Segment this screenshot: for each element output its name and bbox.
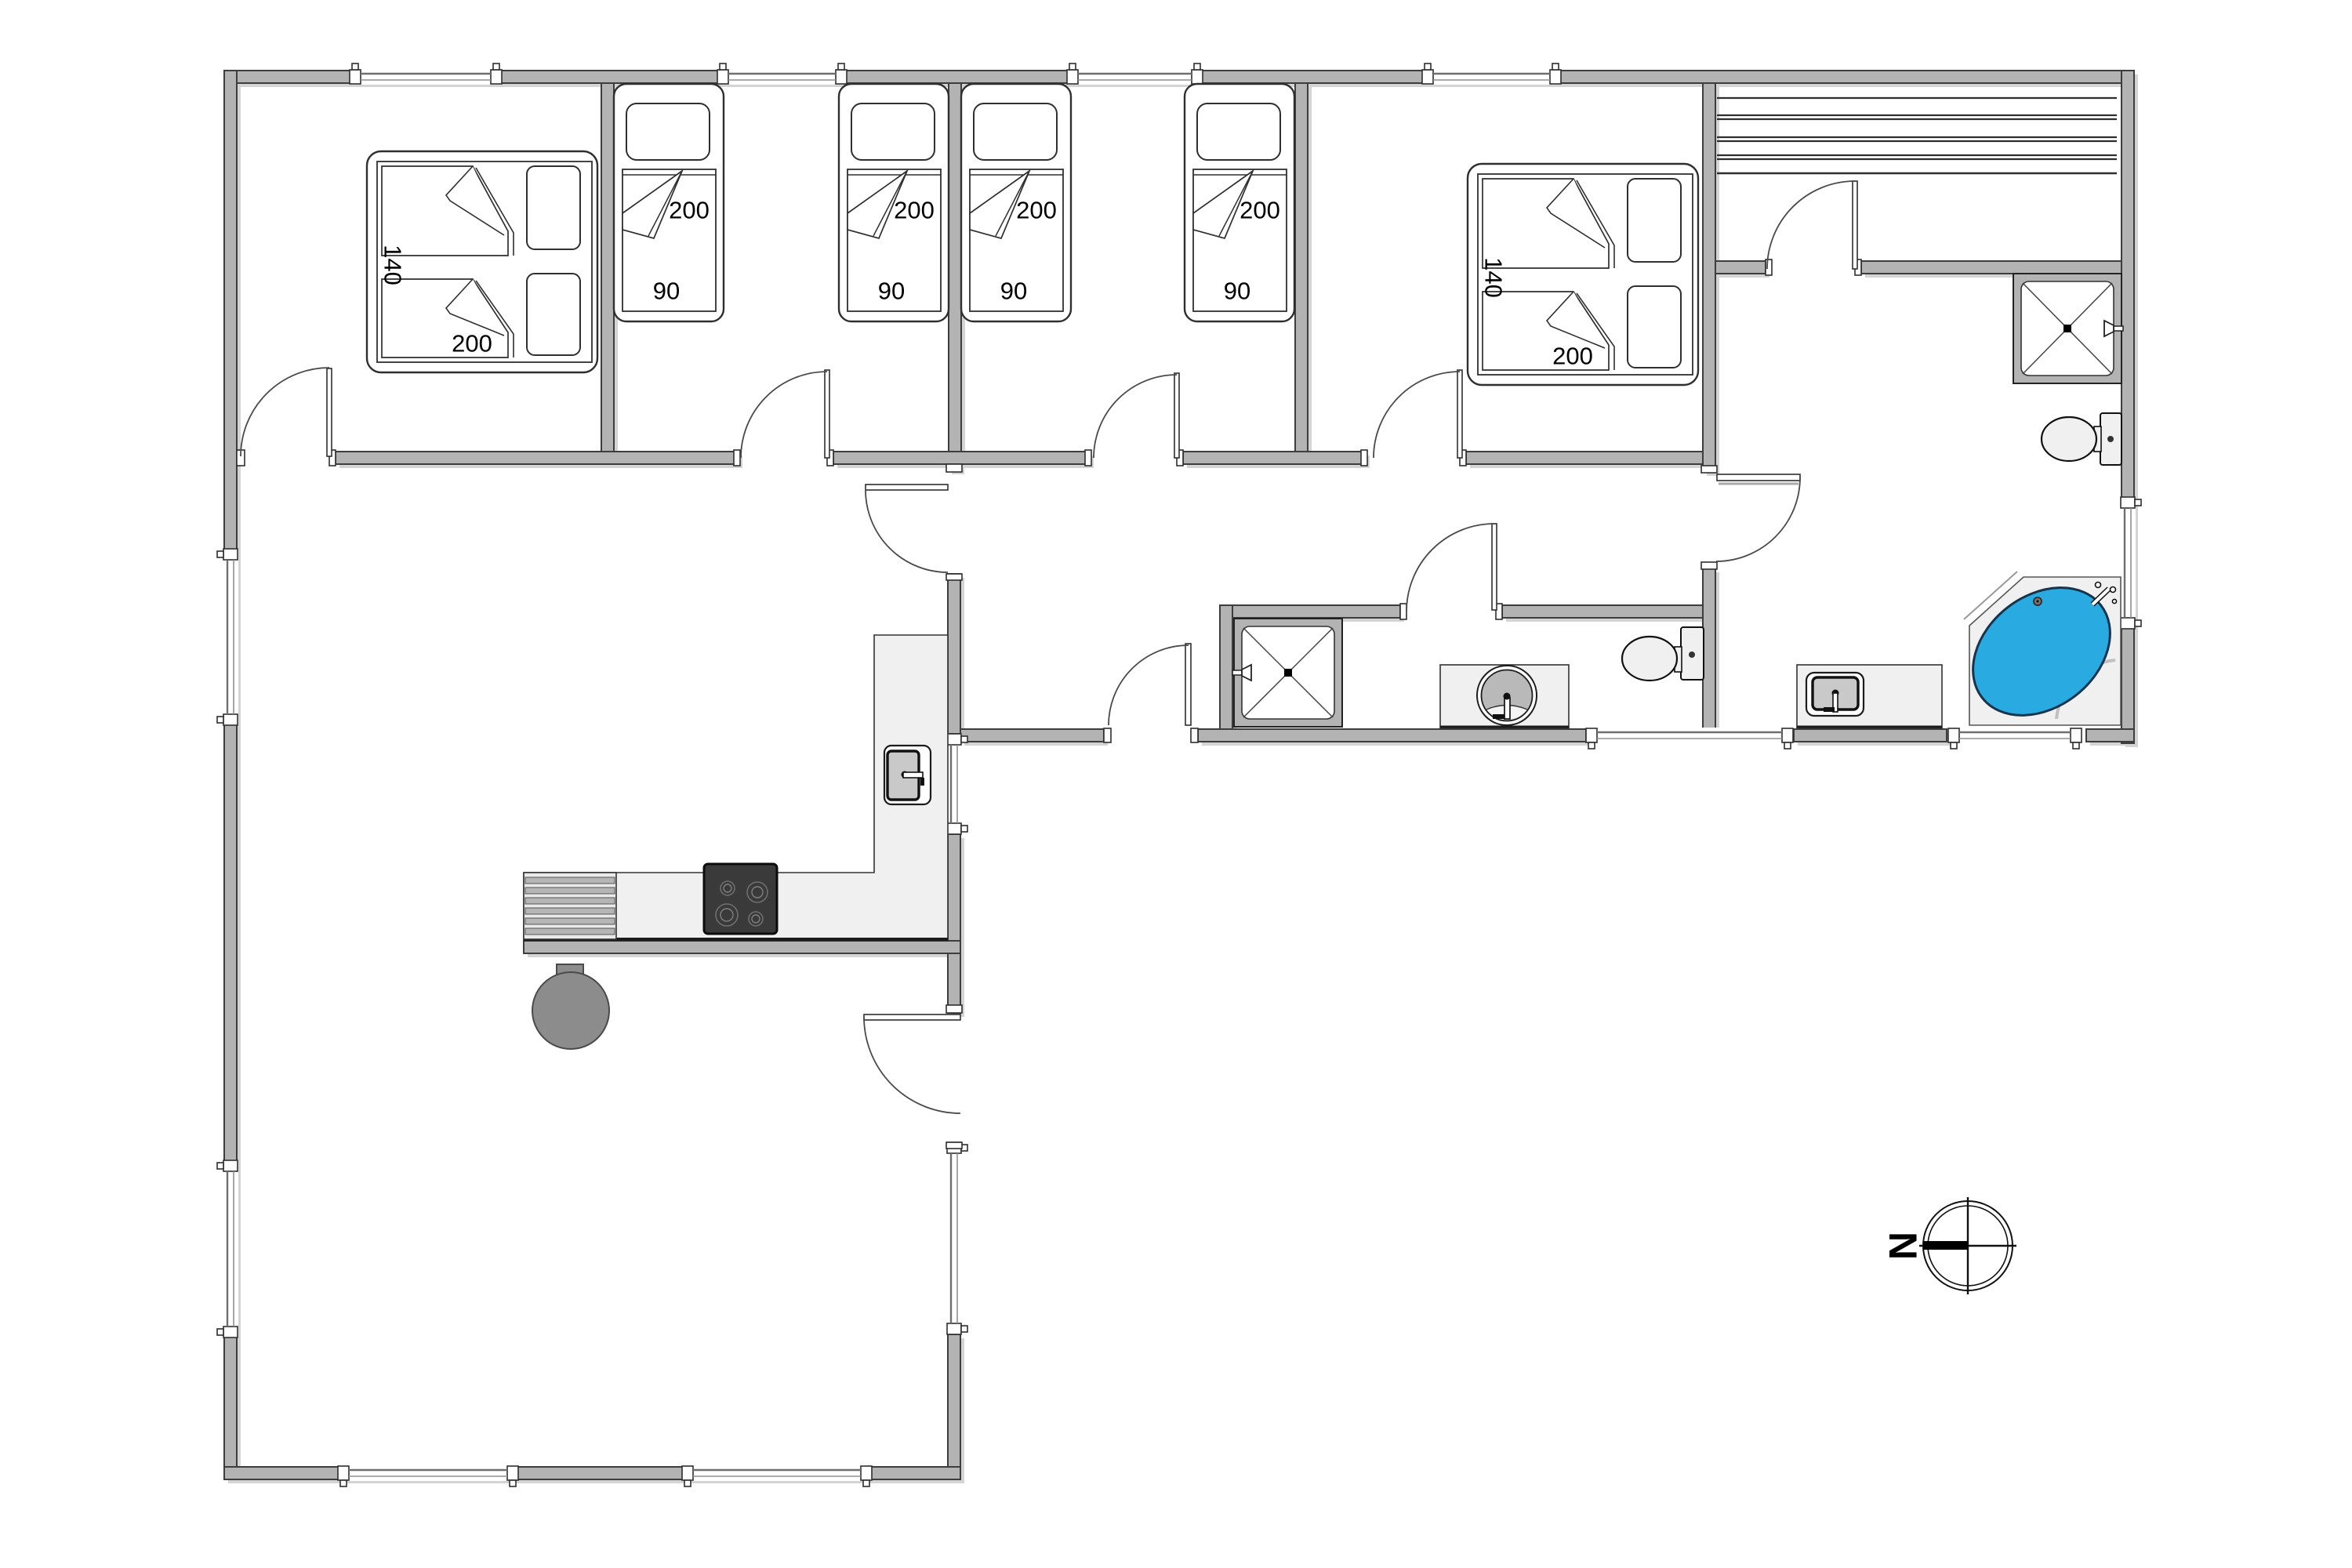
- svg-text:90: 90: [653, 278, 680, 305]
- svg-text:140: 140: [1480, 257, 1508, 298]
- svg-text:140: 140: [379, 245, 407, 285]
- svg-text:90: 90: [878, 278, 905, 305]
- svg-text:200: 200: [452, 330, 492, 358]
- svg-text:200: 200: [1240, 197, 1280, 224]
- svg-text:N: N: [1881, 1232, 1925, 1260]
- svg-text:200: 200: [669, 197, 710, 224]
- svg-text:200: 200: [894, 197, 935, 224]
- svg-text:200: 200: [1552, 343, 1593, 370]
- svg-text:90: 90: [1000, 278, 1027, 305]
- svg-text:90: 90: [1224, 278, 1250, 305]
- svg-text:200: 200: [1016, 197, 1057, 224]
